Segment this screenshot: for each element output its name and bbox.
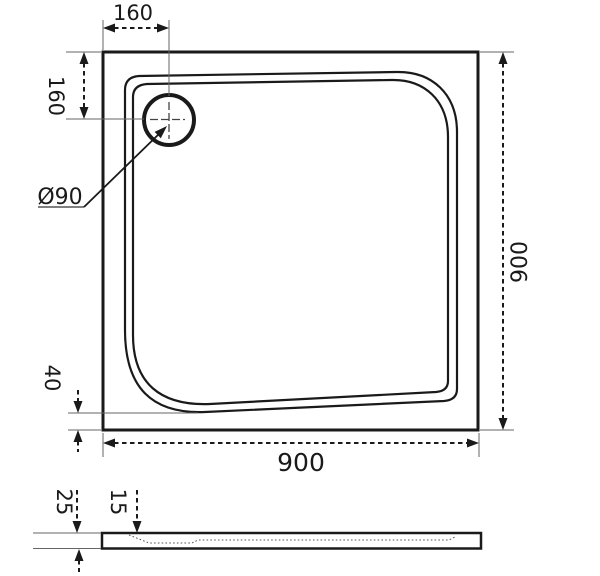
technical-drawing-canvas: 160 160 Ø90 900 40 — [0, 0, 600, 576]
arrowhead-down-icon — [80, 107, 89, 119]
dim-label-bottom-inset: 40 — [40, 365, 64, 392]
tray-profile-outline — [102, 533, 481, 549]
technical-drawing-page: 160 160 Ø90 900 40 — [0, 0, 600, 576]
dim-label-total-thickness: 25 — [52, 489, 76, 516]
arrowhead-up-icon — [80, 52, 89, 64]
dimension-drain-offset-x: 160 — [103, 1, 169, 96]
arrowhead-right-icon — [157, 24, 169, 33]
dim-label-drain-offset-x: 160 — [113, 1, 153, 25]
leader-line — [84, 132, 161, 207]
arrowhead-down-icon — [133, 521, 142, 533]
dim-label-drain-offset-y: 160 — [44, 76, 68, 116]
side-view — [33, 533, 481, 549]
dimension-overall-width: 900 — [103, 433, 479, 477]
tray-floor-outline — [133, 80, 448, 404]
dimension-total-thickness: 25 — [52, 489, 84, 572]
arrowhead-up-icon — [75, 549, 84, 561]
dim-label-overall-width: 900 — [277, 448, 325, 477]
dimension-overall-height: 900 — [480, 52, 533, 430]
arrowhead-right-icon — [467, 439, 479, 448]
tray-inner-rim-outline — [125, 72, 457, 412]
tray-outer-outline — [103, 52, 478, 430]
arrowhead-down-icon — [499, 418, 508, 430]
dim-label-overall-height: 900 — [508, 241, 533, 283]
tray-profile-inner-floor-hidden-line — [129, 535, 455, 543]
arrowhead-left-icon — [103, 439, 115, 448]
dim-label-inner-depth: 15 — [106, 489, 130, 516]
arrowhead-down-icon — [74, 401, 83, 413]
dim-label-drain-diameter: Ø90 — [37, 185, 82, 210]
dimension-drain-offset-y: 160 — [44, 52, 144, 119]
top-view — [103, 52, 478, 430]
arrowhead-up-icon — [74, 430, 83, 442]
arrowhead-up-icon — [499, 52, 508, 64]
arrowhead-down-icon — [73, 521, 82, 533]
dimension-inner-depth: 15 — [106, 489, 142, 533]
